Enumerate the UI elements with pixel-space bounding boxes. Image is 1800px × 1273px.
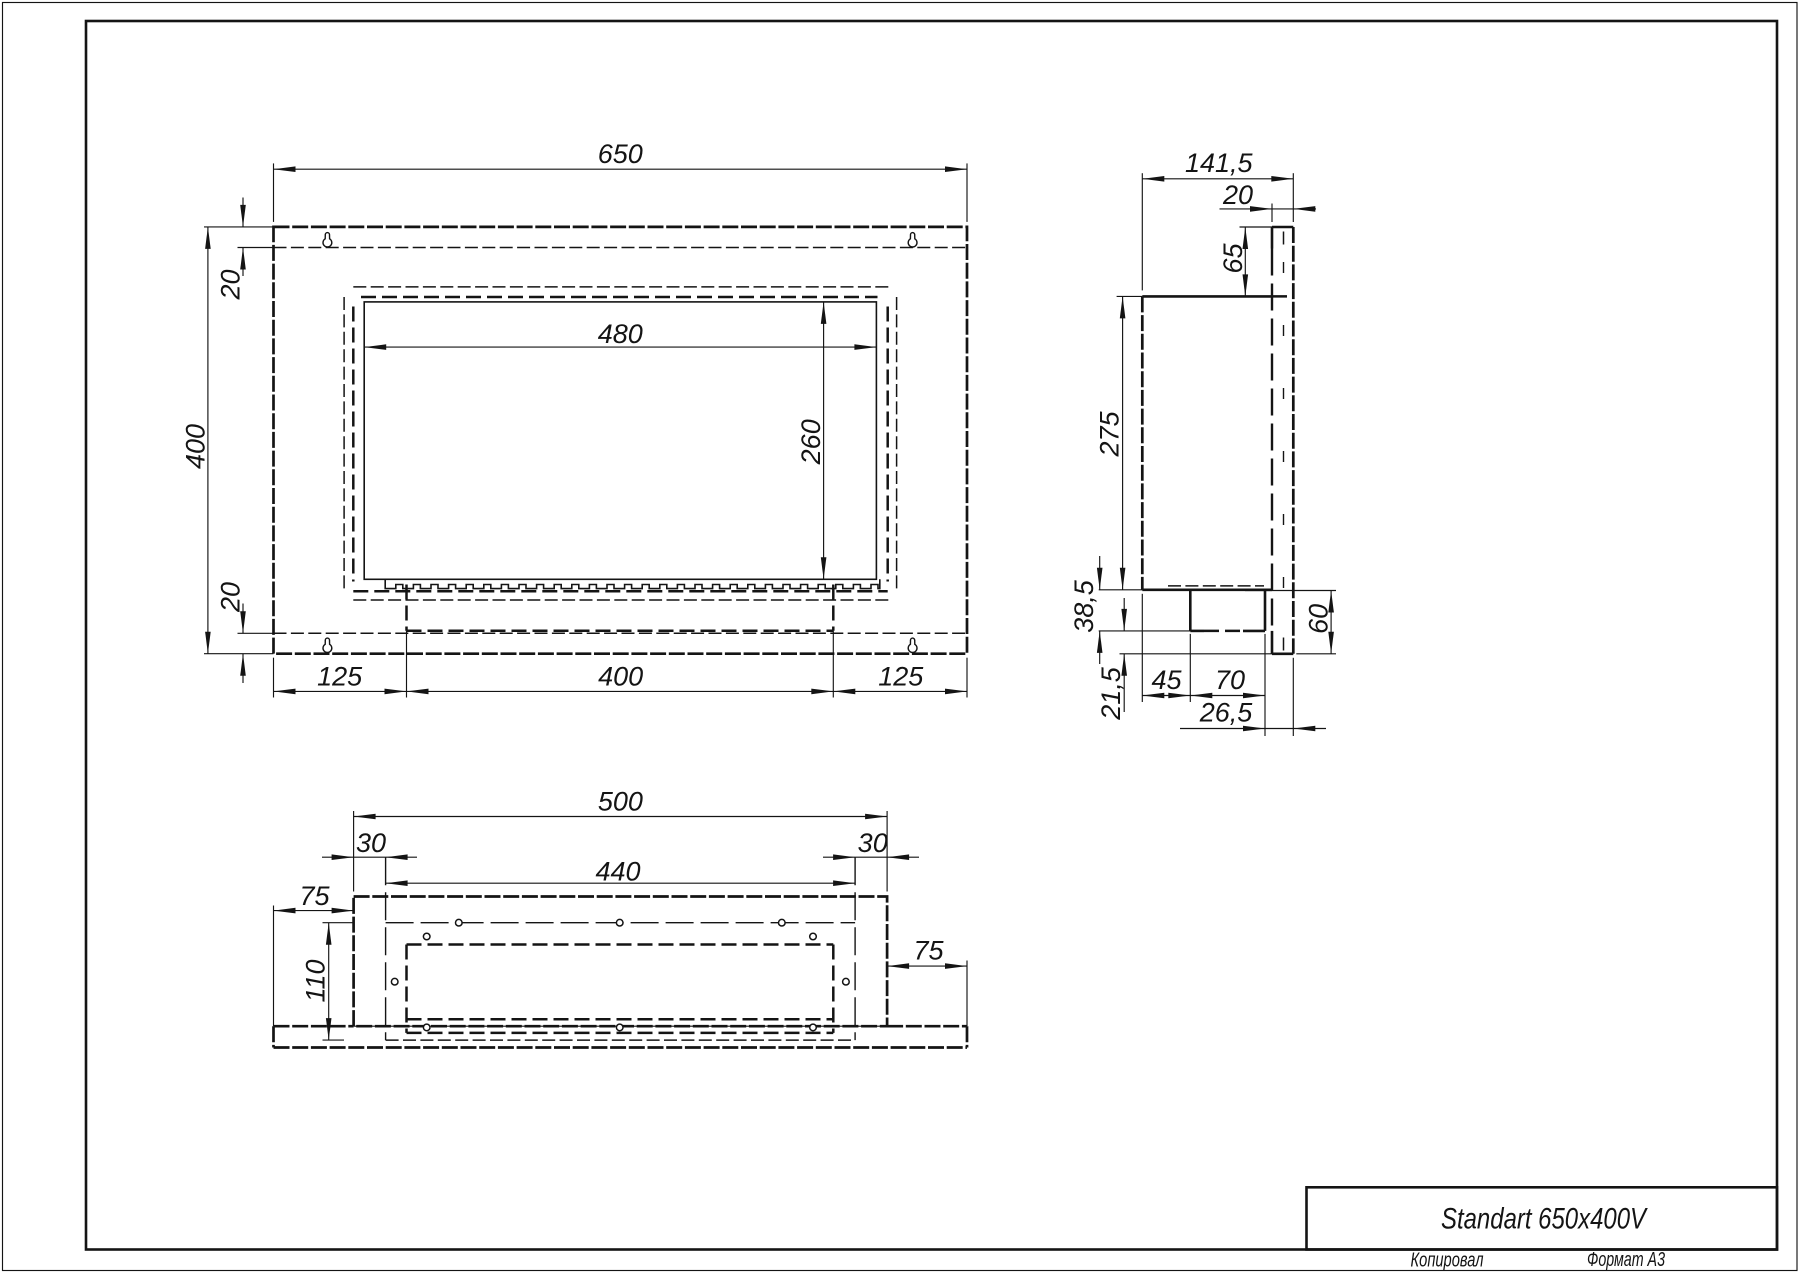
svg-text:20: 20 [216,269,246,300]
svg-text:60: 60 [1304,604,1334,634]
svg-text:38,5: 38,5 [1069,579,1099,633]
svg-text:110: 110 [301,959,331,1002]
svg-text:70: 70 [1215,665,1245,695]
svg-text:65: 65 [1218,243,1248,274]
svg-text:45: 45 [1151,665,1182,695]
svg-text:21,5: 21,5 [1096,666,1126,721]
svg-text:400: 400 [181,424,211,469]
svg-text:480: 480 [598,319,643,349]
svg-text:440: 440 [595,857,640,887]
svg-text:20: 20 [1222,180,1253,210]
svg-text:75: 75 [913,936,944,966]
svg-text:26,5: 26,5 [1199,698,1254,728]
svg-text:75: 75 [299,881,330,911]
svg-text:500: 500 [598,787,643,817]
svg-text:400: 400 [598,661,643,691]
svg-text:125: 125 [317,661,363,691]
svg-text:125: 125 [878,661,924,691]
svg-text:260: 260 [796,419,826,465]
svg-text:650: 650 [598,139,643,169]
svg-text:Standart 650x400V: Standart 650x400V [1441,1202,1648,1235]
svg-text:141,5: 141,5 [1185,148,1254,178]
svg-text:Копировал: Копировал [1411,1249,1484,1271]
svg-text:20: 20 [216,582,246,613]
svg-text:Формат А3: Формат А3 [1587,1249,1665,1271]
svg-text:30: 30 [858,828,888,858]
svg-text:30: 30 [356,828,386,858]
svg-text:275: 275 [1095,410,1125,457]
